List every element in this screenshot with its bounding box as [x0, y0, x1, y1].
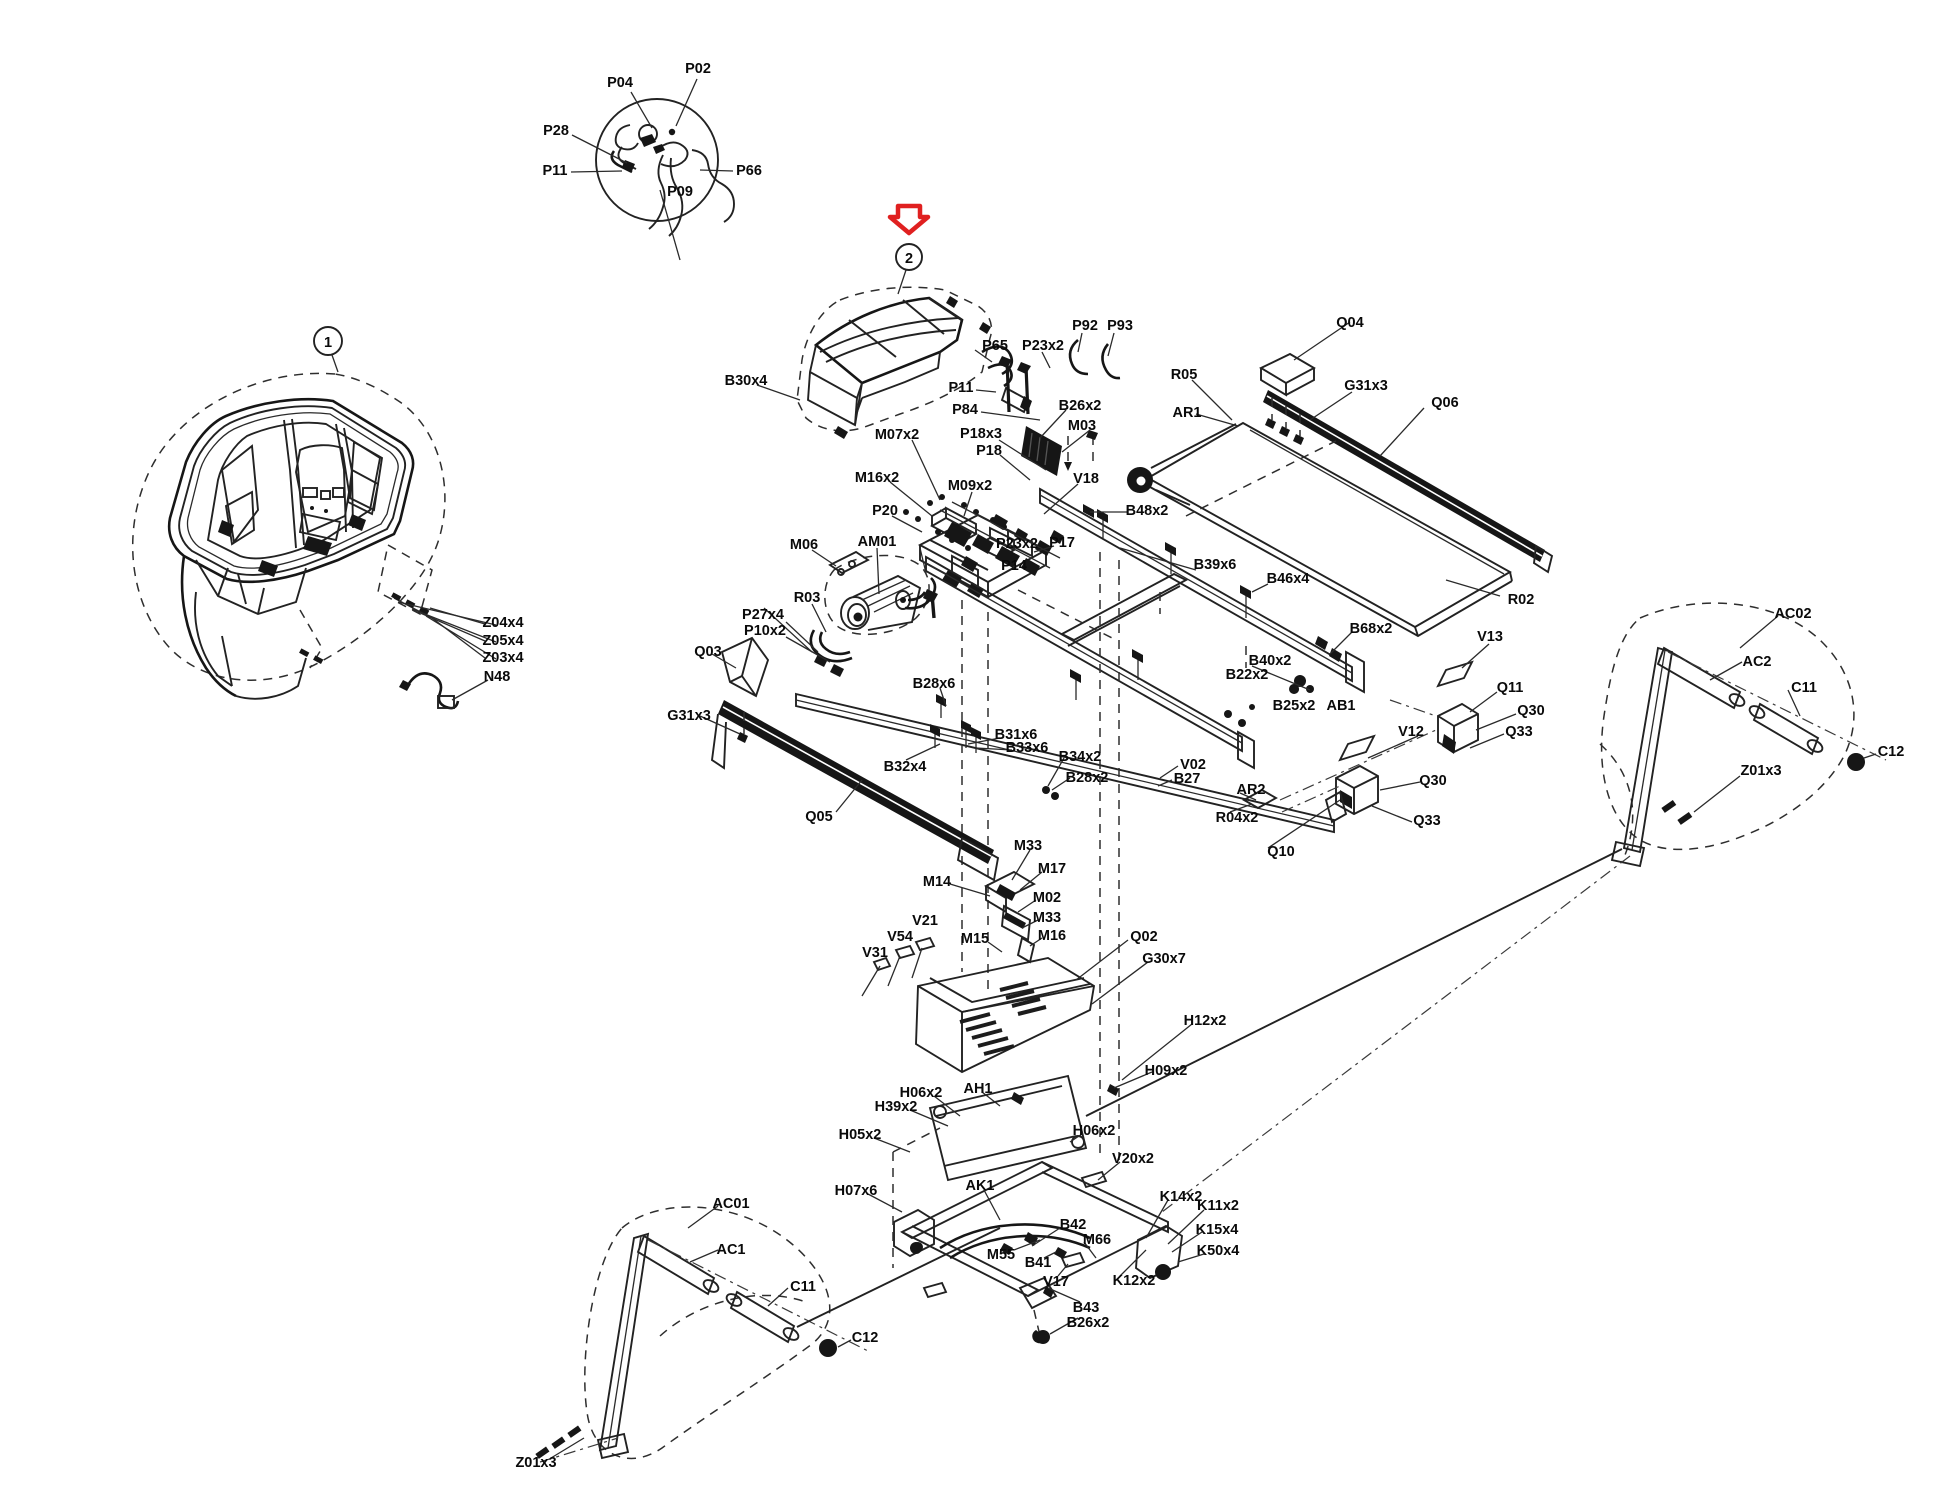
svg-text:K11x2: K11x2 — [1197, 1198, 1239, 1214]
svg-text:B46x4: B46x4 — [1267, 571, 1310, 587]
svg-text:Z04x4: Z04x4 — [482, 615, 523, 631]
svg-text:B68x2: B68x2 — [1350, 621, 1393, 637]
svg-text:Q33: Q33 — [1505, 724, 1532, 740]
svg-text:M14: M14 — [923, 874, 951, 890]
svg-text:Z01x3: Z01x3 — [1740, 763, 1781, 779]
svg-text:N48: N48 — [484, 669, 511, 685]
svg-text:R05: R05 — [1171, 367, 1198, 383]
svg-text:B48x2: B48x2 — [1126, 503, 1169, 519]
svg-text:K50x4: K50x4 — [1197, 1243, 1240, 1259]
svg-text:P23x2: P23x2 — [996, 536, 1038, 552]
svg-text:P10x2: P10x2 — [744, 623, 786, 639]
svg-text:B43: B43 — [1073, 1300, 1100, 1316]
svg-text:Z03x4: Z03x4 — [482, 650, 523, 666]
svg-text:C12: C12 — [852, 1330, 879, 1346]
svg-text:1: 1 — [324, 335, 332, 351]
svg-text:M15: M15 — [961, 931, 989, 947]
svg-text:H09x2: H09x2 — [1145, 1063, 1188, 1079]
svg-text:V17: V17 — [1043, 1274, 1069, 1290]
svg-text:Q02: Q02 — [1130, 929, 1157, 945]
svg-text:M66: M66 — [1083, 1232, 1111, 1248]
svg-text:AR2: AR2 — [1236, 782, 1265, 798]
svg-text:Q06: Q06 — [1431, 395, 1458, 411]
svg-text:G31x3: G31x3 — [667, 708, 711, 724]
svg-text:M33: M33 — [1014, 838, 1042, 854]
svg-text:H06x2: H06x2 — [1073, 1123, 1116, 1139]
svg-text:H05x2: H05x2 — [839, 1127, 882, 1143]
svg-text:P18x3: P18x3 — [960, 426, 1002, 442]
svg-text:B39x6: B39x6 — [1194, 557, 1237, 573]
svg-text:P18: P18 — [976, 443, 1002, 459]
svg-text:G30x7: G30x7 — [1142, 951, 1186, 967]
svg-text:B27: B27 — [1174, 771, 1201, 787]
svg-text:Z01x3: Z01x3 — [515, 1455, 556, 1471]
svg-text:H12x2: H12x2 — [1184, 1013, 1227, 1029]
svg-text:P84: P84 — [952, 402, 978, 418]
svg-text:Q05: Q05 — [805, 809, 832, 825]
svg-text:AC01: AC01 — [712, 1196, 749, 1212]
svg-text:P23x2: P23x2 — [1022, 338, 1064, 354]
svg-text:AB1: AB1 — [1326, 698, 1355, 714]
svg-text:B42: B42 — [1060, 1217, 1087, 1233]
svg-text:Q04: Q04 — [1336, 315, 1363, 331]
svg-text:M09x2: M09x2 — [948, 478, 992, 494]
svg-text:P92: P92 — [1072, 318, 1098, 334]
svg-text:P14: P14 — [1001, 558, 1027, 574]
svg-text:B28x2: B28x2 — [1066, 770, 1109, 786]
svg-text:R02: R02 — [1508, 592, 1535, 608]
svg-text:M16: M16 — [1038, 928, 1066, 944]
svg-text:AM01: AM01 — [858, 534, 897, 550]
svg-text:AK1: AK1 — [965, 1178, 994, 1194]
svg-text:M16x2: M16x2 — [855, 470, 899, 486]
svg-text:P02: P02 — [685, 61, 711, 77]
svg-text:Q33: Q33 — [1413, 813, 1440, 829]
svg-text:Z05x4: Z05x4 — [482, 633, 523, 649]
svg-text:Q11: Q11 — [1497, 680, 1524, 696]
svg-text:M02: M02 — [1033, 890, 1061, 906]
svg-text:P11: P11 — [543, 163, 568, 179]
svg-text:AC1: AC1 — [716, 1242, 745, 1258]
svg-text:P09: P09 — [667, 184, 693, 200]
svg-text:G31x3: G31x3 — [1344, 378, 1388, 394]
svg-text:V21: V21 — [912, 913, 938, 929]
svg-text:C11: C11 — [1791, 680, 1817, 696]
svg-text:B33x6: B33x6 — [1006, 740, 1049, 756]
svg-text:Q30: Q30 — [1517, 703, 1544, 719]
svg-text:Q10: Q10 — [1267, 844, 1294, 860]
svg-text:P27x4: P27x4 — [742, 607, 784, 623]
svg-text:2: 2 — [905, 251, 913, 267]
svg-text:AC2: AC2 — [1742, 654, 1771, 670]
svg-text:K14x2: K14x2 — [1160, 1189, 1203, 1205]
svg-text:P65: P65 — [982, 338, 1008, 354]
svg-text:K15x4: K15x4 — [1196, 1222, 1239, 1238]
svg-text:B26x2: B26x2 — [1067, 1315, 1110, 1331]
svg-text:B22x2: B22x2 — [1226, 667, 1269, 683]
svg-text:C11: C11 — [790, 1279, 816, 1295]
svg-text:M07x2: M07x2 — [875, 427, 919, 443]
svg-text:V13: V13 — [1477, 629, 1503, 645]
svg-text:M33: M33 — [1033, 910, 1061, 926]
svg-text:B25x2: B25x2 — [1273, 698, 1316, 714]
svg-text:M17: M17 — [1038, 861, 1066, 877]
svg-text:AC02: AC02 — [1774, 606, 1811, 622]
svg-text:P28: P28 — [543, 123, 569, 139]
svg-text:V20x2: V20x2 — [1112, 1151, 1154, 1167]
svg-text:B26x2: B26x2 — [1059, 398, 1102, 414]
svg-text:R03: R03 — [794, 590, 821, 606]
svg-text:Q30: Q30 — [1419, 773, 1446, 789]
svg-text:Q03: Q03 — [694, 644, 721, 660]
svg-text:P93: P93 — [1107, 318, 1133, 334]
svg-text:B41: B41 — [1025, 1255, 1052, 1271]
svg-text:B30x4: B30x4 — [725, 373, 768, 389]
svg-text:B32x4: B32x4 — [884, 759, 927, 775]
svg-text:V54: V54 — [887, 929, 913, 945]
svg-text:P17: P17 — [1049, 535, 1075, 551]
svg-text:M06: M06 — [790, 537, 818, 553]
svg-text:R04x2: R04x2 — [1216, 810, 1259, 826]
svg-text:P04: P04 — [607, 75, 633, 91]
svg-text:V18: V18 — [1073, 471, 1099, 487]
svg-text:H07x6: H07x6 — [835, 1183, 878, 1199]
svg-text:B28x6: B28x6 — [913, 676, 956, 692]
svg-text:P66: P66 — [736, 163, 762, 179]
svg-text:V31: V31 — [862, 945, 888, 961]
svg-text:AR1: AR1 — [1172, 405, 1201, 421]
svg-text:H39x2: H39x2 — [875, 1099, 918, 1115]
svg-text:M55: M55 — [987, 1247, 1015, 1263]
svg-text:P20: P20 — [872, 503, 898, 519]
svg-text:V12: V12 — [1398, 724, 1424, 740]
svg-text:AH1: AH1 — [963, 1081, 992, 1097]
svg-text:B34x2: B34x2 — [1059, 749, 1102, 765]
svg-text:P11: P11 — [949, 380, 974, 396]
svg-text:M03: M03 — [1068, 418, 1096, 434]
svg-text:K12x2: K12x2 — [1113, 1273, 1156, 1289]
svg-text:C12: C12 — [1878, 744, 1905, 760]
